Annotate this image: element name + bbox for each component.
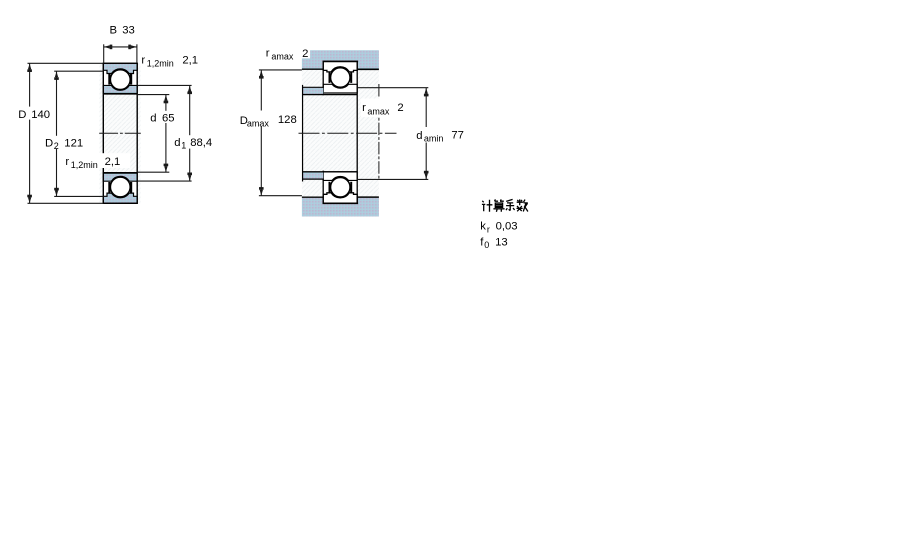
svg-text:1: 1 <box>181 141 186 151</box>
svg-text:r: r <box>362 102 366 114</box>
svg-text:r: r <box>141 54 145 66</box>
svg-text:B: B <box>110 25 118 37</box>
svg-text:77: 77 <box>451 130 464 142</box>
svg-text:d: d <box>150 112 156 124</box>
svg-text:k: k <box>480 221 486 233</box>
svg-text:r: r <box>65 156 69 168</box>
svg-text:33: 33 <box>122 25 135 37</box>
svg-text:r: r <box>487 224 490 234</box>
svg-text:128: 128 <box>278 114 297 126</box>
svg-text:2: 2 <box>397 102 403 114</box>
svg-text:0: 0 <box>484 240 489 250</box>
svg-text:amax: amax <box>271 52 294 62</box>
svg-text:2,1: 2,1 <box>105 156 121 168</box>
svg-text:65: 65 <box>162 112 175 124</box>
svg-text:2,1: 2,1 <box>182 54 198 66</box>
svg-text:amin: amin <box>424 134 444 144</box>
svg-text:0,03: 0,03 <box>496 221 518 233</box>
svg-text:1,2min: 1,2min <box>147 58 174 68</box>
svg-text:2: 2 <box>54 141 59 151</box>
svg-text:amax: amax <box>367 106 390 116</box>
svg-text:1,2min: 1,2min <box>71 160 98 170</box>
svg-text:amax: amax <box>247 118 270 128</box>
svg-text:140: 140 <box>31 109 50 121</box>
svg-text:D: D <box>18 109 26 121</box>
svg-text:d: d <box>174 137 180 149</box>
svg-text:d: d <box>416 130 422 142</box>
svg-text:D: D <box>45 137 53 149</box>
svg-text:121: 121 <box>64 137 83 149</box>
svg-text:13: 13 <box>495 236 508 248</box>
svg-text:88,4: 88,4 <box>190 137 212 149</box>
svg-text:2: 2 <box>302 48 308 60</box>
svg-text:r: r <box>266 48 270 60</box>
